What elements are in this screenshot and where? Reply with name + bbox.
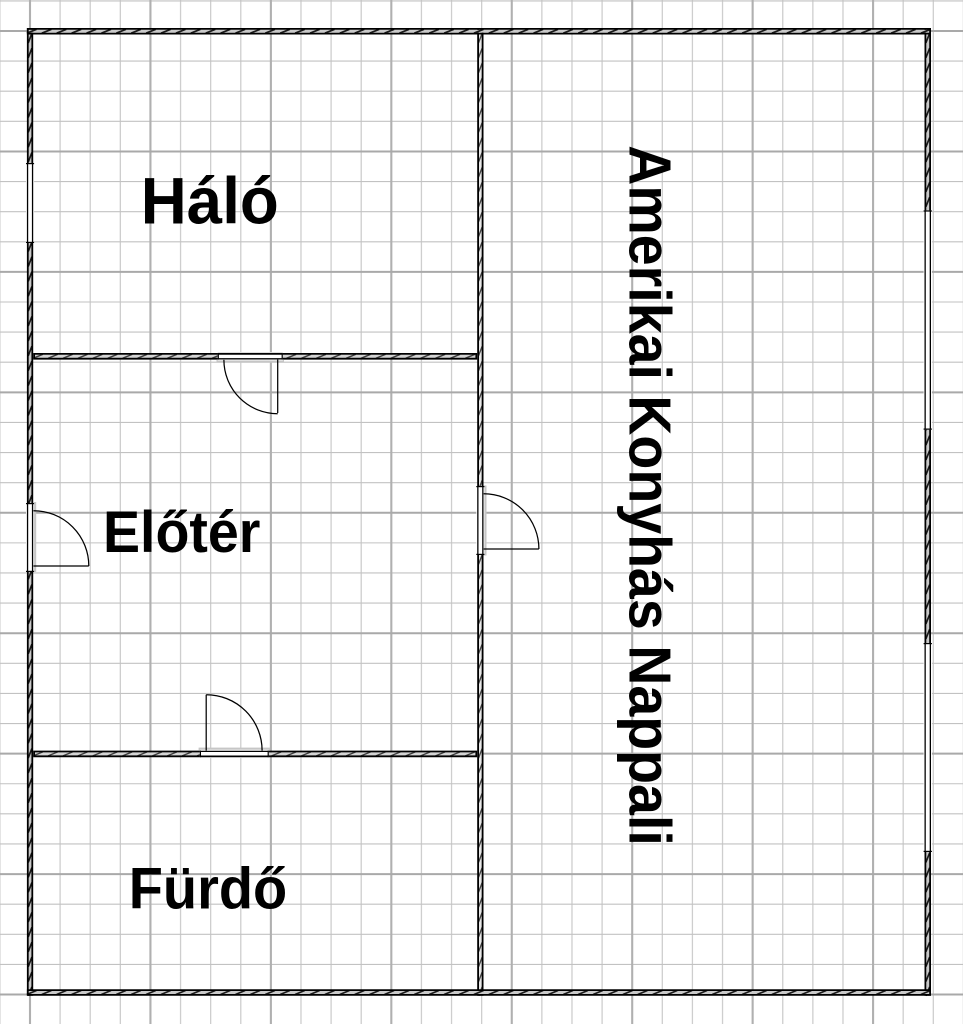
svg-text:Amerikai Konyhás Nappali: Amerikai Konyhás Nappali <box>617 145 684 846</box>
svg-text:Előtér: Előtér <box>103 500 261 565</box>
svg-text:Háló: Háló <box>141 165 279 238</box>
svg-text:Fürdő: Fürdő <box>129 857 288 922</box>
